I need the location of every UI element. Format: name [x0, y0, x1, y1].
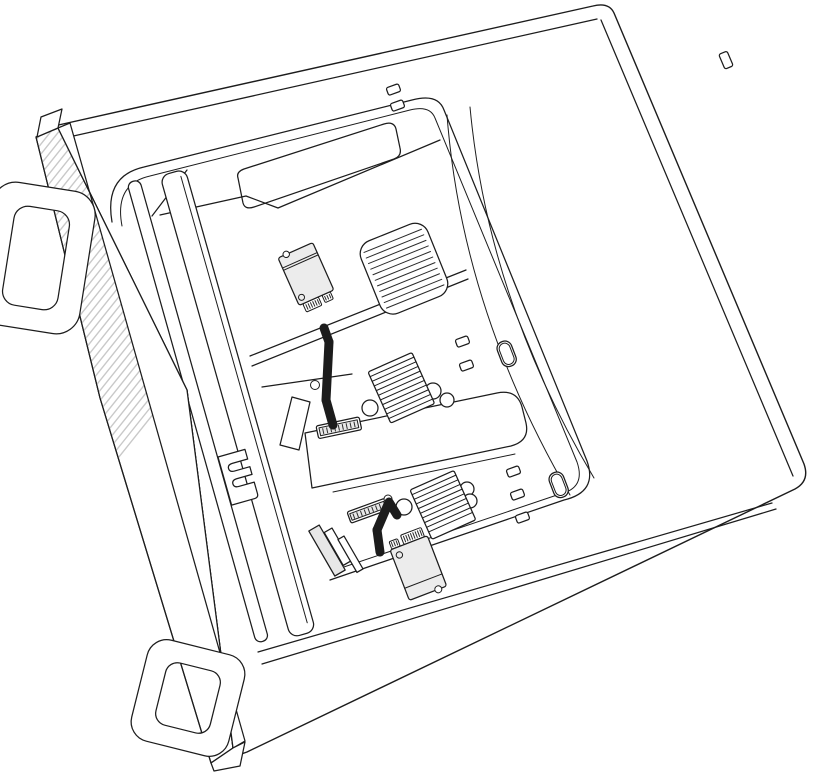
mac-pro-ssd-removal-illustration: Line-art illustration of a Mac Pro tower… [0, 0, 816, 776]
mount-post [362, 400, 378, 416]
latch-notch [719, 51, 734, 69]
arrow-head-shaft [324, 328, 329, 342]
standoff-screw [311, 381, 320, 390]
illustration-canvas [0, 0, 816, 776]
arrow-mid-light [326, 342, 329, 400]
